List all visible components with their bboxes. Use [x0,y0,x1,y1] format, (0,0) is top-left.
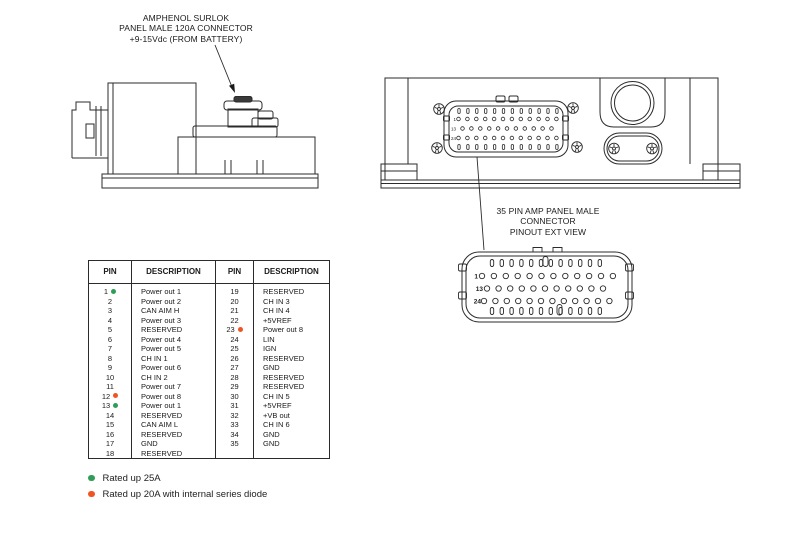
surlok-connector-front [600,78,665,127]
orange-rating-dot [238,327,243,332]
screw-icon [647,143,658,154]
orange-rating-dot [88,491,95,498]
pin-number-cell: 2 [89,297,132,307]
pin-table-row: 3CAN AIM H21CH IN 4 [89,306,330,316]
pin-number-cell: 6 [89,335,132,345]
pin-number-cell: 12 [89,392,132,402]
legend-label: Rated up 20A with internal series diode [103,489,268,500]
screw-icon [609,143,620,154]
surlok-connector-side [193,97,278,138]
pin-number-cell: 19 [216,284,254,297]
pin-number-cell: 13 [89,401,132,411]
pin-number-cell [216,449,254,459]
pin-description-cell: Power out 1 [132,284,216,297]
ext-row1-label: 1 [474,274,478,281]
annotation-leader-line [215,45,235,93]
pin-description-cell: RESERVED [132,411,216,421]
pin-description-cell: CH IN 3 [254,297,330,307]
pin-table-row: 13Power out 131+5VREF [89,401,330,411]
pin-description-cell: LIN [254,335,330,345]
annotation-line: 35 PIN AMP PANEL MALE [468,206,628,216]
pin-table-row: 10CH IN 228RESERVED [89,373,330,383]
front-row1-label: 1 [453,117,456,122]
pin-number-cell: 35 [216,439,254,449]
pin-number-cell: 31 [216,401,254,411]
pin-table-row: 16RESERVED34GND [89,430,330,440]
pin-description-cell: CAN AIM L [132,420,216,430]
pin-number-cell: 11 [89,382,132,392]
pin-number-cell: 24 [216,335,254,345]
pin-description-cell: Power out 8 [132,392,216,402]
pin-number-cell: 18 [89,449,132,459]
pin-description-cell: CH IN 5 [254,392,330,402]
pinout-diagram-page: 1 13 24 [0,0,800,536]
pin-header: PIN [216,261,254,284]
description-header: DESCRIPTION [254,261,330,284]
pin-connector-front: 1 13 24 [444,96,569,157]
pin-description-cell: +5VREF [254,401,330,411]
pin-description-cell: RESERVED [254,382,330,392]
front-row3-label: 24 [451,136,457,141]
pin-description-cell: CH IN 6 [254,420,330,430]
pin-number-cell: 8 [89,354,132,364]
pin-description-cell: CH IN 1 [132,354,216,364]
pin-number-cell: 32 [216,411,254,421]
pin-description-cell: Power out 3 [132,316,216,326]
pin-number-cell: 27 [216,363,254,373]
pin-description-cell: Power out 8 [254,325,330,335]
pin-description-cell: Power out 7 [132,382,216,392]
pin-description-cell: Power out 6 [132,363,216,373]
pin-table-row: 15CAN AIM L33CH IN 6 [89,420,330,430]
annotation-line: PINOUT EXT VIEW [468,227,628,237]
pin-number-cell: 16 [89,430,132,440]
pin-description-cell: GND [254,430,330,440]
pin-number-cell: 5 [89,325,132,335]
pin-number-cell: 30 [216,392,254,402]
pin-table-row: 1Power out 119RESERVED [89,284,330,297]
orange-rating-dot [113,393,118,398]
pin-description-cell: RESERVED [254,373,330,383]
pinout-ext-view-drawing: 1 13 24 [459,248,634,323]
annotation-line: PANEL MALE 120A CONNECTOR [108,23,264,33]
legend: Rated up 25ARated up 20A with internal s… [88,470,267,502]
pin-number-cell: 3 [89,306,132,316]
pin-table-row: 12Power out 830CH IN 5 [89,392,330,402]
pin-table-row: 8CH IN 126RESERVED [89,354,330,364]
green-rating-dot [88,475,95,482]
pin-number-cell: 10 [89,373,132,383]
pin-description-cell: RESERVED [132,430,216,440]
pin-description-cell: RESERVED [132,325,216,335]
legend-label: Rated up 25A [103,473,161,484]
pin-description-cell: GND [254,363,330,373]
pin-description-cell: RESERVED [254,354,330,364]
legend-item: Rated up 20A with internal series diode [88,486,267,502]
pin-number-cell: 25 [216,344,254,354]
pin-number-cell: 23 [216,325,254,335]
screw-icon [432,143,443,154]
ext-row2-label: 13 [476,286,484,293]
screw-icon [572,142,583,153]
pin-description-cell: Power out 4 [132,335,216,345]
pinout-view-label: 35 PIN AMP PANEL MALE CONNECTOR PINOUT E… [468,206,628,237]
pin-number-cell: 28 [216,373,254,383]
pin-table: PIN DESCRIPTION PIN DESCRIPTION 1Power o… [88,260,330,459]
legend-item: Rated up 25A [88,470,267,486]
pin-description-cell: +5VREF [254,316,330,326]
pin-number-cell: 7 [89,344,132,354]
pin-table-body: 1Power out 119RESERVED2Power out 220CH I… [89,284,330,459]
pin-number-cell: 22 [216,316,254,326]
pin-description-cell: GND [132,439,216,449]
pin-number-cell: 26 [216,354,254,364]
ext-row3-label: 24 [474,299,482,306]
side-connector-stub [72,102,108,158]
pin-table-row: 4Power out 322+5VREF [89,316,330,326]
pin-number-cell: 29 [216,382,254,392]
pin-table-header-row: PIN DESCRIPTION PIN DESCRIPTION [89,261,330,284]
pin-table-row: 7Power out 525IGN [89,344,330,354]
pin-table-row: 11Power out 729RESERVED [89,382,330,392]
pin-table-row: 5RESERVED23Power out 8 [89,325,330,335]
pin-number-cell: 17 [89,439,132,449]
pin-description-cell [254,449,330,459]
pin-description-cell: CH IN 2 [132,373,216,383]
pin-table-row: 6Power out 424LIN [89,335,330,345]
battery-connector-annotation: AMPHENOL SURLOK PANEL MALE 120A CONNECTO… [108,13,264,44]
pin-number-cell: 9 [89,363,132,373]
pin-description-cell: GND [254,439,330,449]
pin-description-cell: CH IN 4 [254,306,330,316]
pin-description-cell: +VB out [254,411,330,421]
green-rating-dot [113,403,118,408]
pin-table-row: 18RESERVED [89,449,330,459]
pin-number-cell: 14 [89,411,132,421]
screw-icon [568,103,579,114]
pin-description-cell: Power out 5 [132,344,216,354]
pin-header: PIN [89,261,132,284]
pin-table-row: 9Power out 627GND [89,363,330,373]
pin-table-row: 17GND35GND [89,439,330,449]
pin-number-cell: 15 [89,420,132,430]
pin-description-cell: Power out 1 [132,401,216,411]
pin-number-cell: 21 [216,306,254,316]
side-view-drawing [72,83,318,188]
green-rating-dot [111,289,116,294]
pin-description-cell: IGN [254,344,330,354]
pin-number-cell: 4 [89,316,132,326]
pin-number-cell: 34 [216,430,254,440]
annotation-line: CONNECTOR [468,216,628,226]
screw-icon [434,104,445,115]
pin-number-cell: 20 [216,297,254,307]
pin-table-row: 14RESERVED32+VB out [89,411,330,421]
description-header: DESCRIPTION [132,261,216,284]
annotation-line: +9-15Vdc (FROM BATTERY) [108,34,264,44]
pin-table-row: 2Power out 220CH IN 3 [89,297,330,307]
pin-number-cell: 33 [216,420,254,430]
pin-description-cell: CAN AIM H [132,306,216,316]
front-row2-label: 13 [451,126,457,131]
pin-description-cell: Power out 2 [132,297,216,307]
pin-description-cell: RESERVED [132,449,216,459]
annotation-line: AMPHENOL SURLOK [108,13,264,23]
pin-number-cell: 1 [89,284,132,297]
pin-description-cell: RESERVED [254,284,330,297]
